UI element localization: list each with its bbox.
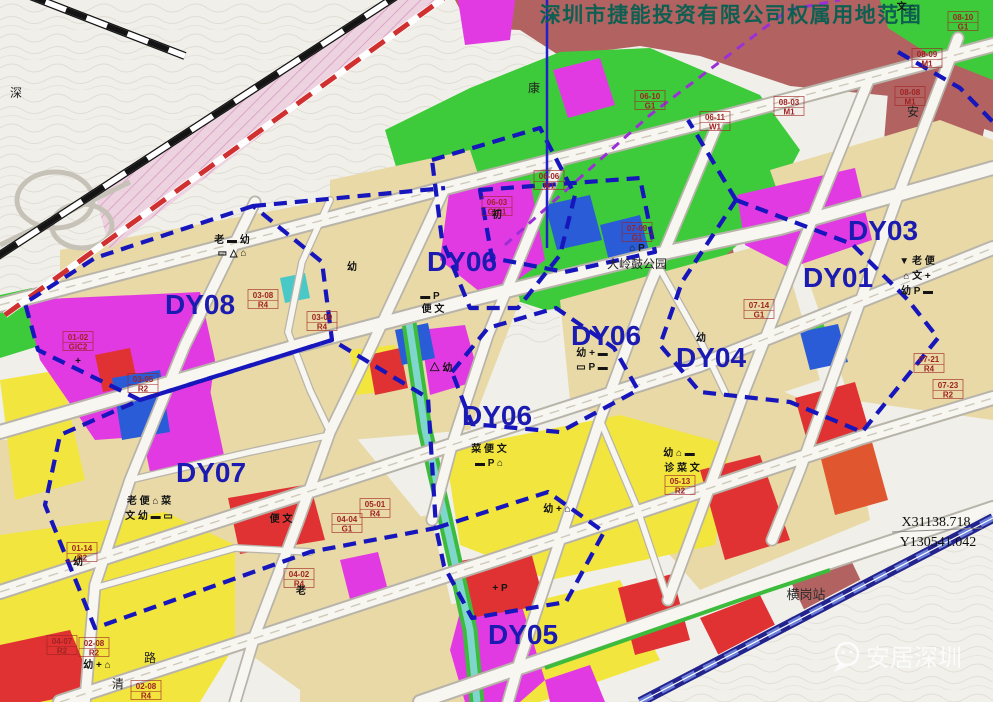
place-label: 路 [144,650,156,665]
parcel-code-number: 07-21 [919,355,940,364]
facility-label: 幼 P ▬ [901,284,933,297]
district-label: DY06 [427,246,497,277]
coordinate-x: X31138.718 [901,515,970,530]
place-label: 深 [10,86,22,100]
parcel-code-number: 03-09 [312,313,333,322]
parcel-zone: M1 [543,182,555,191]
district-label: DY07 [176,457,246,488]
parcel-code-number: 04-07 [52,637,73,646]
facility-label: ⌂ P [629,243,645,254]
district-label: DY08 [165,289,235,320]
facility-label: 便 文 [270,512,294,525]
facility-label: 幼 [347,260,357,273]
parcel-zone: R4 [258,301,269,310]
parcel-code-number: 08-10 [953,13,974,22]
parcel-zone: R2 [57,647,68,656]
parcel-zone: G1 [645,102,656,111]
parcel-code-number: 07-14 [749,301,770,310]
facility-label: 老 [295,584,306,597]
map-canvas: 深圳市捷能投资有限公司权属用地范围 X31138.718 Y130541.042… [0,0,993,702]
planning-map: 深圳市捷能投资有限公司权属用地范围 X31138.718 Y130541.042… [0,0,993,702]
parcel-code-number: 05-01 [365,500,386,509]
parcel-code-number: 01-02 [68,333,89,342]
parcel-zone: R2 [138,385,149,394]
parcel-code-number: 03-08 [253,291,274,300]
facility-label: ▼ 老 便 [899,254,935,267]
parcel-zone: W1 [709,123,722,132]
map-title: 深圳市捷能投资有限公司权属用地范围 [540,3,923,27]
parcel-code-number: 06-06 [539,172,560,181]
facility-label: 便 文 [422,302,446,315]
parcel-code-number: 04-04 [337,515,358,524]
facility-label: 初 [492,208,502,221]
parcel-zone: R2 [89,649,100,658]
district-label: DY03 [848,215,918,246]
facility-label: ▭ △ ⌂ [218,248,247,259]
parcel-code-number: 07-23 [938,381,959,390]
parcel-code-number: 08-03 [779,98,800,107]
parcel-code-number: 08-09 [917,50,938,59]
parcel-code-number: 06-11 [705,113,726,122]
place-label: 安 [907,104,919,119]
district-label: DY06 [462,400,532,431]
facility-label: 文 幼 ▬ ▭ [125,509,173,522]
facility-label: ▬ P ⌂ [475,458,503,469]
facility-label: 幼 ⌂ ▬ [663,446,695,459]
facility-label: 诊 菜 文 [664,461,701,474]
district-label: DY04 [676,342,746,373]
facility-label: 幼 + ⌂ [83,658,110,671]
parcel-zone: R4 [141,692,152,701]
district-label: DY06 [571,320,641,351]
facility-label: ▬ P [420,291,440,302]
place-label: 清 [112,677,124,691]
parcel-code-number: 01-14 [72,544,93,553]
station-label: 横岗站 [786,587,825,602]
parcel-zone: R4 [924,365,935,374]
parcel-zone: GIC2 [69,343,88,352]
facility-label: ▭ P ▬ [576,362,608,373]
facility-label: 幼 + ⌂ [543,502,570,515]
parcel-code-number: 06-10 [640,92,661,101]
district-label: DY05 [488,619,558,650]
parcel-code-number: 05-13 [670,477,691,486]
facility-label: 菜 便 文 [470,442,508,455]
watermark-text: 安居深圳 [866,645,962,672]
facility-label: + P [492,583,508,594]
facility-label: △ 幼 [429,361,453,374]
parcel-code-number: 02-08 [84,639,105,648]
parcel-code-number: 03-05 [133,375,154,384]
parcel-zone: R4 [317,323,328,332]
parcel-code-number: 07-09 [627,224,648,233]
parcel-zone: R4 [370,510,381,519]
parcel-zone: M1 [921,60,933,69]
parcel-zone: G1 [958,23,969,32]
parcel-zone: M1 [783,108,795,117]
facility-label: 老 ▬ 幼 [213,233,250,246]
facility-label: ⌂ 文 + [903,269,931,282]
parcel-code-number: 08-08 [900,88,921,97]
parcel-code-number: 04-02 [289,570,310,579]
facility-label: + [75,356,81,367]
parcel-zone: G1 [342,525,353,534]
parcel-code-number: 06-03 [487,198,508,207]
coordinate-y: Y130541.042 [900,535,977,550]
facility-label: 老 便 ⌂ 菜 [126,494,172,507]
parcel-code-number: 02-08 [136,682,157,691]
parcel-zone: R2 [675,487,686,496]
facility-label: 幼 [73,555,83,568]
facility-label: 文 ⌂ [897,0,916,13]
parcel-zone: G1 [632,234,643,243]
parcel-zone: G1 [754,311,765,320]
parcel-zone: R2 [943,391,954,400]
district-label: DY01 [803,262,873,293]
place-label: 康 [528,80,540,95]
place-label: 大岭鼓公园 [607,257,667,271]
